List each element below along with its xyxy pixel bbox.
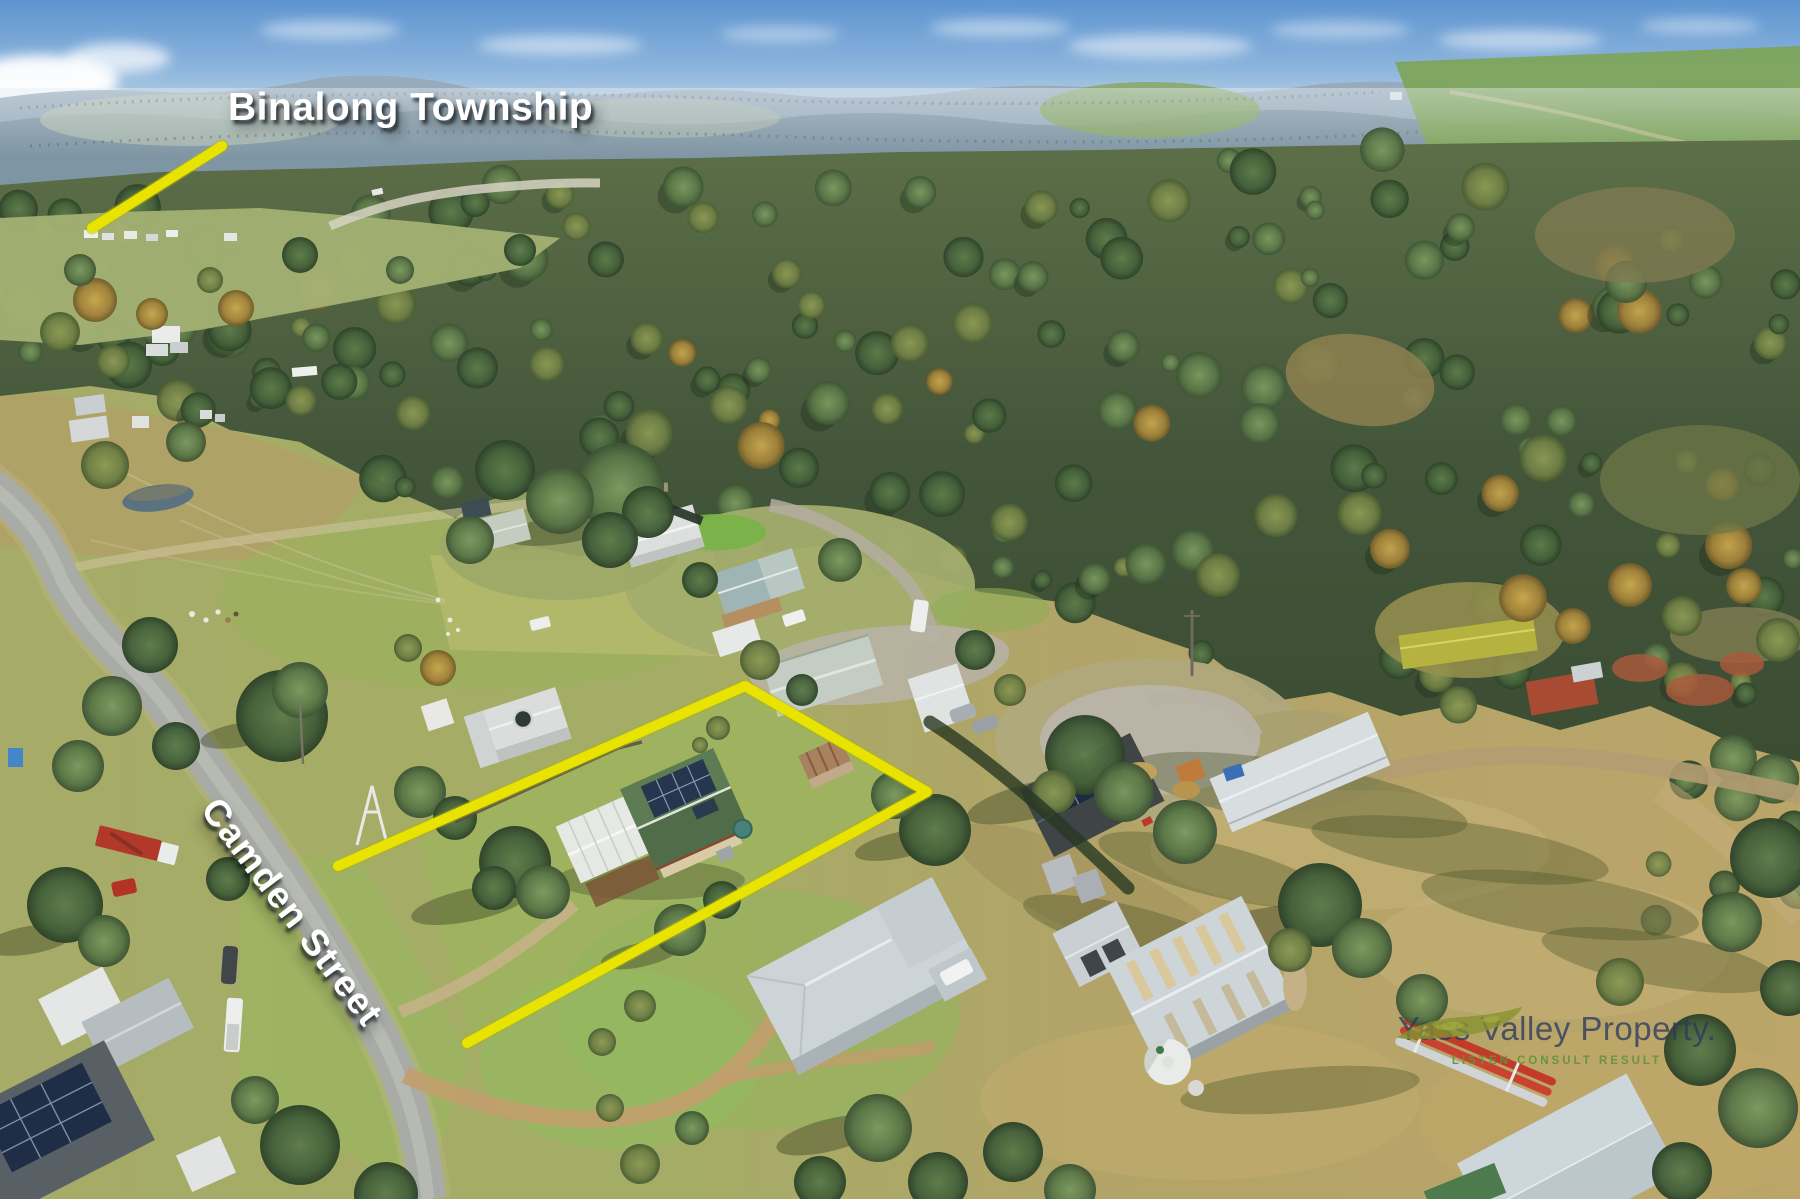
watermark-tagline: LISTEN CONSULT RESULT <box>1392 1055 1722 1067</box>
watermark: Yass Valley Property. LISTEN CONSULT RES… <box>1392 1010 1722 1067</box>
township-label: Binalong Township <box>228 86 593 130</box>
aerial-photo: Binalong Township Camden Street Yass Val… <box>0 0 1800 1199</box>
